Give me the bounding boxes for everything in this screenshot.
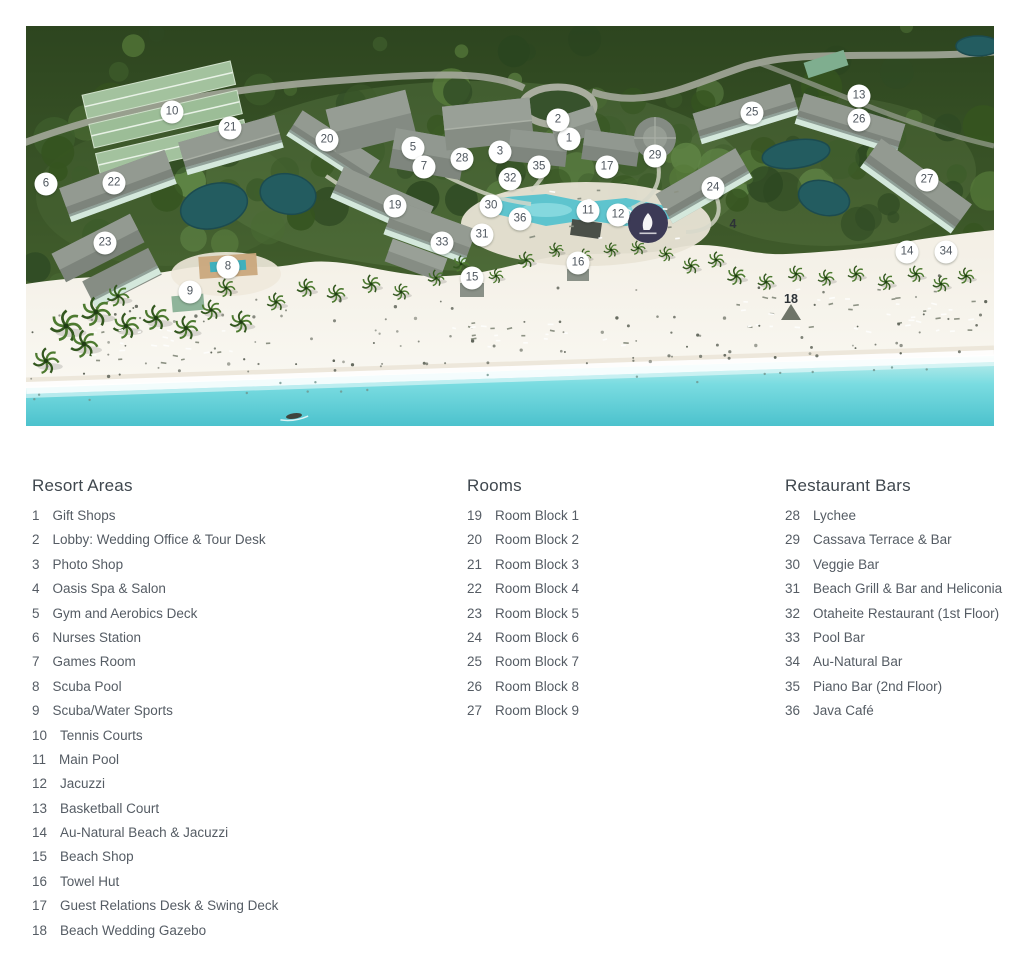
map-marker-22: 22 xyxy=(103,172,126,195)
legend-item: 3Photo Shop xyxy=(32,558,278,572)
map-marker-23: 23 xyxy=(94,232,117,255)
map-marker-15: 15 xyxy=(461,267,484,290)
legend-item: 7Games Room xyxy=(32,655,278,669)
legend-item: 22Room Block 4 xyxy=(467,582,579,596)
map-marker-14: 14 xyxy=(896,241,919,264)
legend-item: 15Beach Shop xyxy=(32,850,278,864)
legend-item: 6Nurses Station xyxy=(32,631,278,645)
map-marker-2: 2 xyxy=(547,109,570,132)
legend-item: 26Room Block 8 xyxy=(467,680,579,694)
map-markers: 1234567891011121314151617181920212223242… xyxy=(26,26,994,426)
legend-item: 33Pool Bar xyxy=(785,631,1002,645)
legend-item: 25Room Block 7 xyxy=(467,655,579,669)
legend-item: 1Gift Shops xyxy=(32,509,278,523)
map-marker-26: 26 xyxy=(848,109,871,132)
legend-heading-rooms: Rooms xyxy=(467,476,579,495)
legend-item: 20Room Block 2 xyxy=(467,533,579,547)
map-marker-28: 28 xyxy=(451,148,474,171)
legend-column-restaurant-bars: Restaurant Bars 28Lychee29Cassava Terrac… xyxy=(785,476,1002,729)
map-marker-27: 27 xyxy=(916,169,939,192)
legend-item: 9Scuba/Water Sports xyxy=(32,704,278,718)
legend-item: 36Java Café xyxy=(785,704,1002,718)
map-marker-3: 3 xyxy=(489,141,512,164)
legend-heading-restaurant-bars: Restaurant Bars xyxy=(785,476,1002,495)
legend-item: 8Scuba Pool xyxy=(32,680,278,694)
map-marker-7: 7 xyxy=(413,156,436,179)
legend-item: 21Room Block 3 xyxy=(467,558,579,572)
map-marker-8: 8 xyxy=(217,256,240,279)
legend-item: 24Room Block 6 xyxy=(467,631,579,645)
map-marker-4: 4 xyxy=(730,218,737,231)
legend-item: 29Cassava Terrace & Bar xyxy=(785,533,1002,547)
legend-item: 12Jacuzzi xyxy=(32,777,278,791)
legend-item: 16Towel Hut xyxy=(32,875,278,889)
map-marker-31: 31 xyxy=(471,224,494,247)
legend-item: 4Oasis Spa & Salon xyxy=(32,582,278,596)
legend-item: 23Room Block 5 xyxy=(467,607,579,621)
legend-item: 14Au-Natural Beach & Jacuzzi xyxy=(32,826,278,840)
legend-item: 5Gym and Aerobics Deck xyxy=(32,607,278,621)
map-marker-17: 17 xyxy=(596,156,619,179)
map-marker-24: 24 xyxy=(702,177,725,200)
map-marker-25: 25 xyxy=(741,102,764,125)
map-marker-18: 18 xyxy=(784,293,798,306)
legend-column-resort-areas: Resort Areas 1Gift Shops2Lobby: Wedding … xyxy=(32,476,278,948)
map-marker-20: 20 xyxy=(316,129,339,152)
resort-map: 1234567891011121314151617181920212223242… xyxy=(26,26,994,426)
map-marker-16: 16 xyxy=(567,252,590,275)
legend-item: 32Otaheite Restaurant (1st Floor) xyxy=(785,607,1002,621)
map-marker-33: 33 xyxy=(431,232,454,255)
legend-item: 19Room Block 1 xyxy=(467,509,579,523)
legend-column-rooms: Rooms 19Room Block 120Room Block 221Room… xyxy=(467,476,579,729)
map-marker-10: 10 xyxy=(161,101,184,124)
page: 1234567891011121314151617181920212223242… xyxy=(0,0,1024,962)
map-marker-9: 9 xyxy=(179,281,202,304)
legend-item: 31Beach Grill & Bar and Heliconia xyxy=(785,582,1002,596)
legend-item: 10Tennis Courts xyxy=(32,729,278,743)
map-marker-21: 21 xyxy=(219,117,242,140)
legend-item: 2Lobby: Wedding Office & Tour Desk xyxy=(32,533,278,547)
legend-item: 27Room Block 9 xyxy=(467,704,579,718)
map-marker-35: 35 xyxy=(528,156,551,179)
legend-item: 28Lychee xyxy=(785,509,1002,523)
map-marker-6: 6 xyxy=(35,173,58,196)
legend-item: 34Au-Natural Bar xyxy=(785,655,1002,669)
map-marker-29: 29 xyxy=(644,145,667,168)
map-marker-19: 19 xyxy=(384,195,407,218)
map-marker-30: 30 xyxy=(480,195,503,218)
map-marker-36: 36 xyxy=(509,208,532,231)
legend-heading-resort-areas: Resort Areas xyxy=(32,476,278,495)
legend-item: 30Veggie Bar xyxy=(785,558,1002,572)
legend-item: 17Guest Relations Desk & Swing Deck xyxy=(32,899,278,913)
legend-item: 13Basketball Court xyxy=(32,802,278,816)
map-marker-11: 11 xyxy=(577,200,600,223)
legend-item: 35Piano Bar (2nd Floor) xyxy=(785,680,1002,694)
map-marker-34: 34 xyxy=(935,241,958,264)
map-marker-13: 13 xyxy=(848,85,871,108)
map-marker-12: 12 xyxy=(607,204,630,227)
map-marker-32: 32 xyxy=(499,168,522,191)
legend-item: 11Main Pool xyxy=(32,753,278,767)
legend-item: 18Beach Wedding Gazebo xyxy=(32,924,278,938)
